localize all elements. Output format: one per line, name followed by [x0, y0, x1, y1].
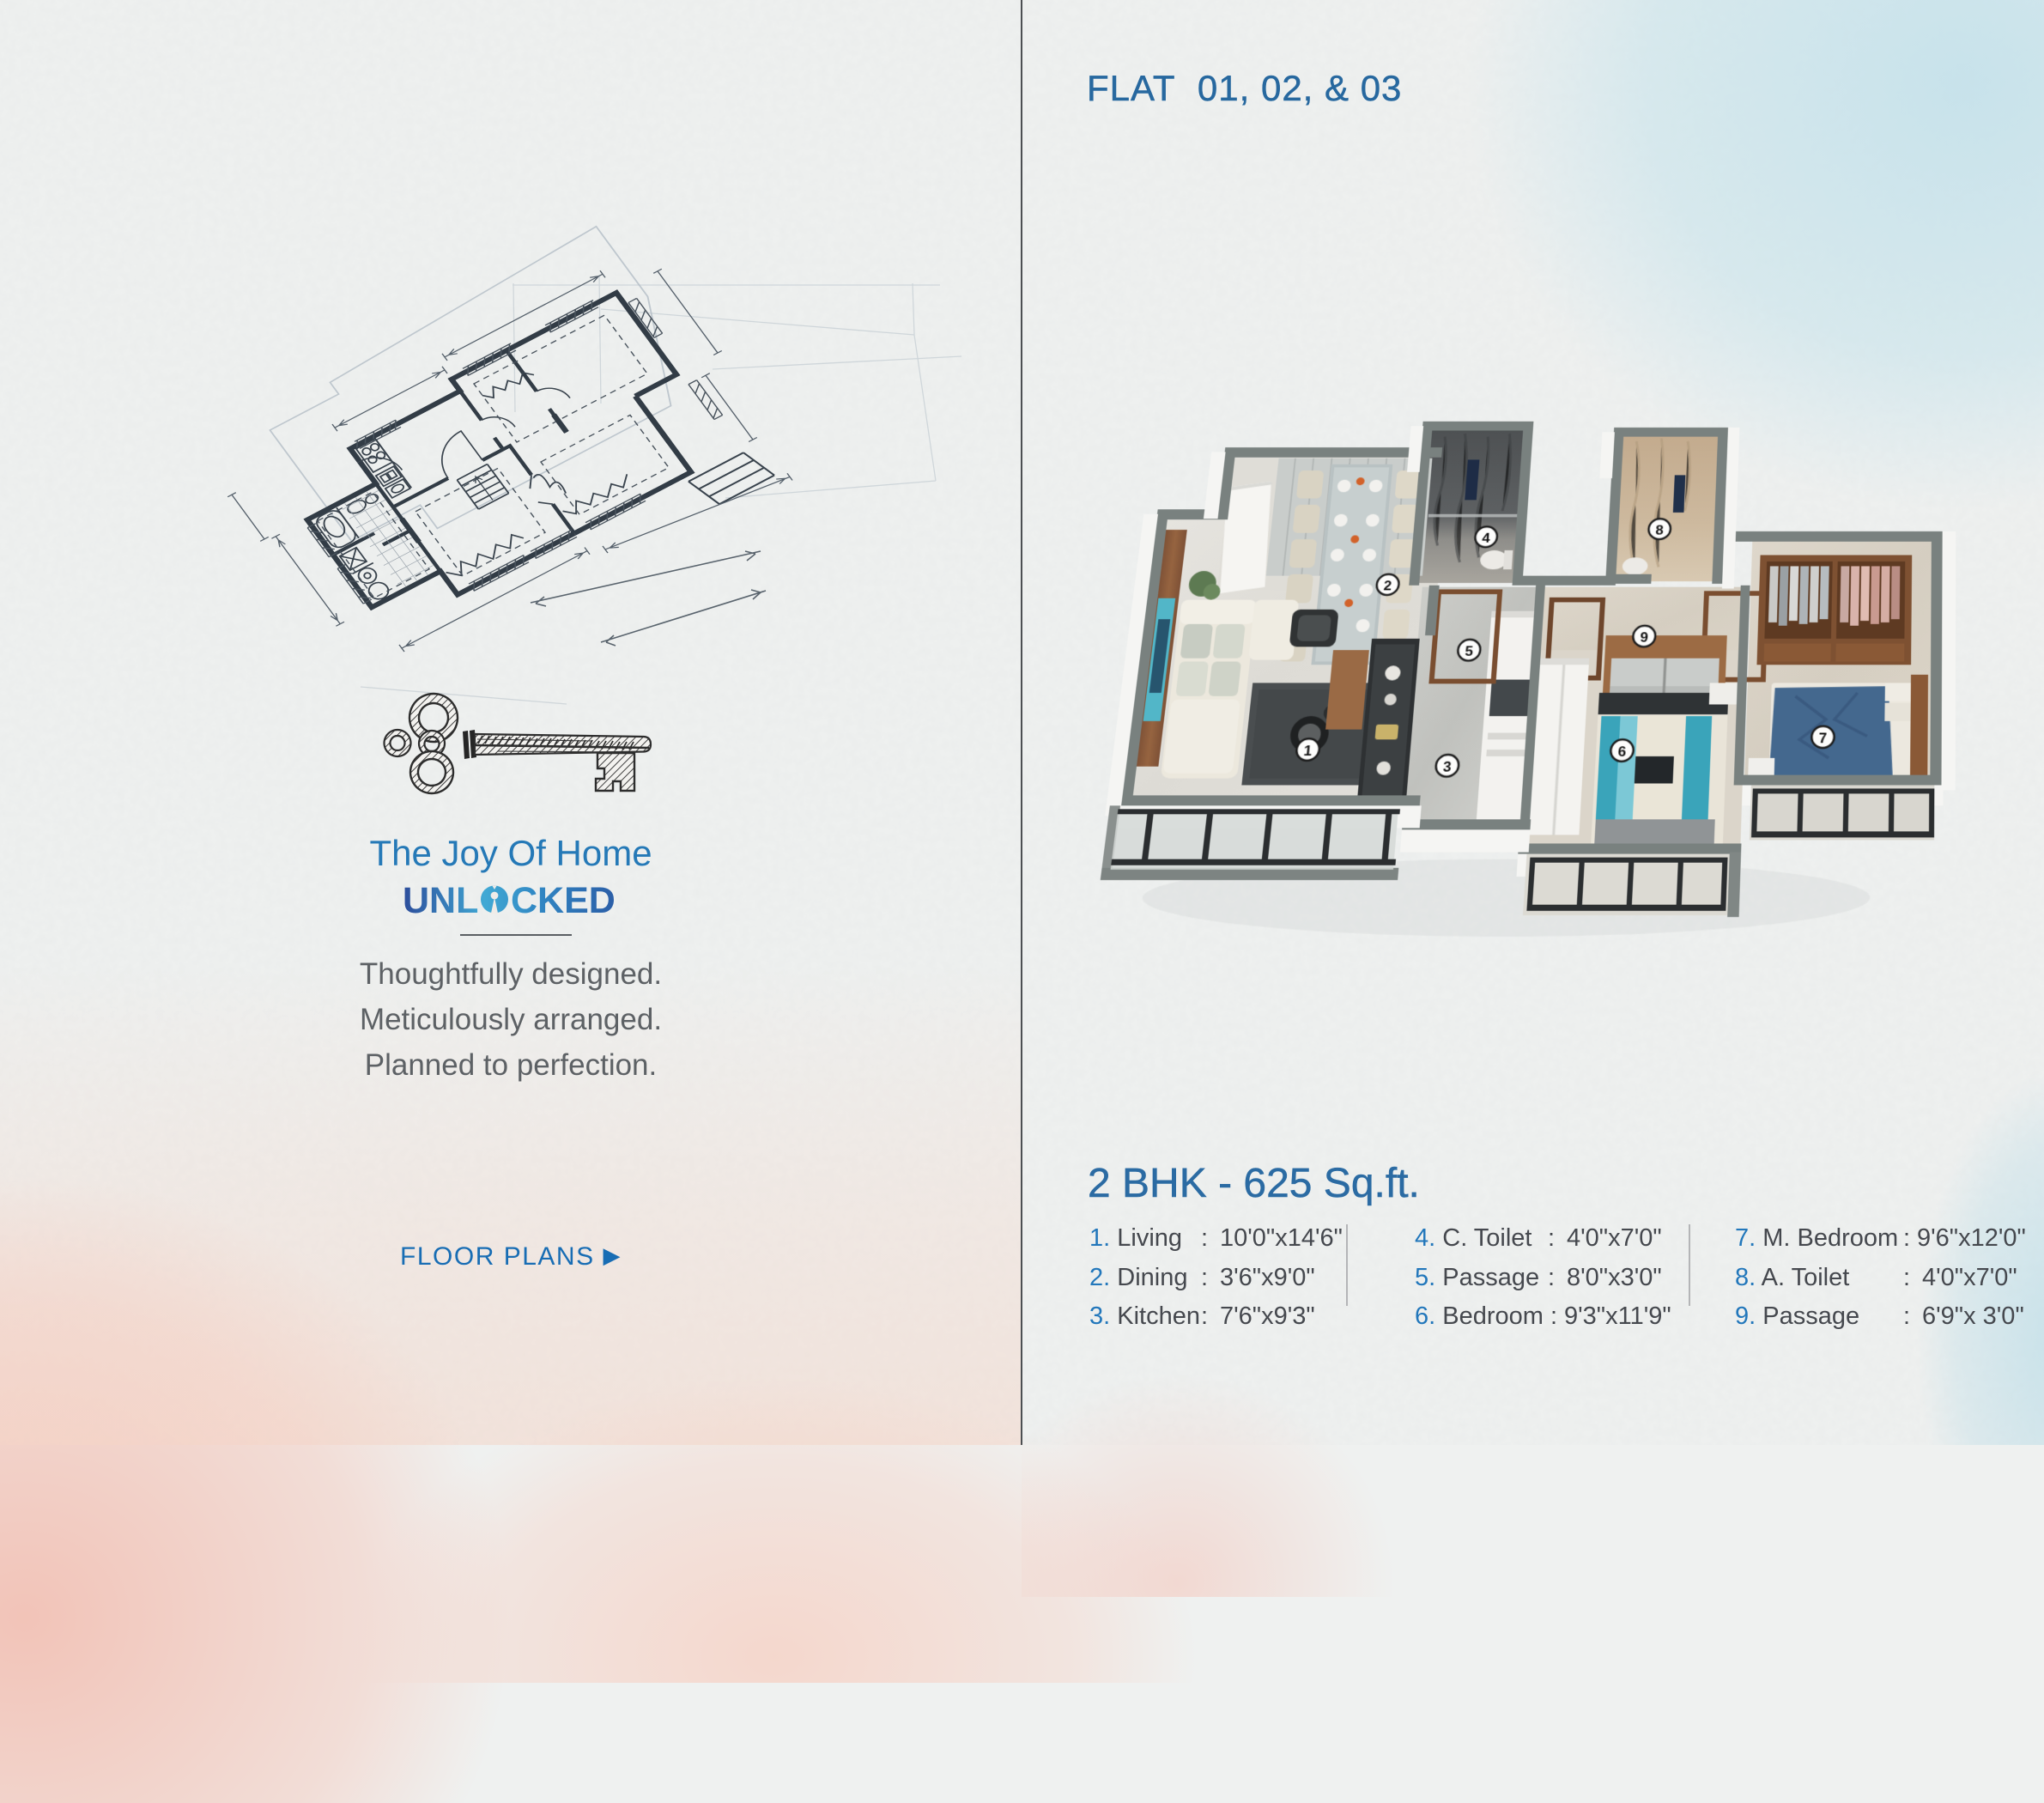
svg-text:CKED: CKED	[511, 880, 616, 921]
svg-text:8: 8	[1655, 524, 1664, 538]
svg-text:2: 2	[1383, 579, 1392, 593]
svg-text:9: 9	[1640, 630, 1649, 646]
svg-text:UNL: UNL	[403, 880, 478, 921]
svg-text:6: 6	[1617, 744, 1627, 760]
svg-text:7: 7	[1818, 731, 1827, 746]
svg-text:3: 3	[1442, 760, 1452, 775]
svg-text:5: 5	[1465, 644, 1474, 659]
svg-text:4: 4	[1482, 531, 1491, 546]
